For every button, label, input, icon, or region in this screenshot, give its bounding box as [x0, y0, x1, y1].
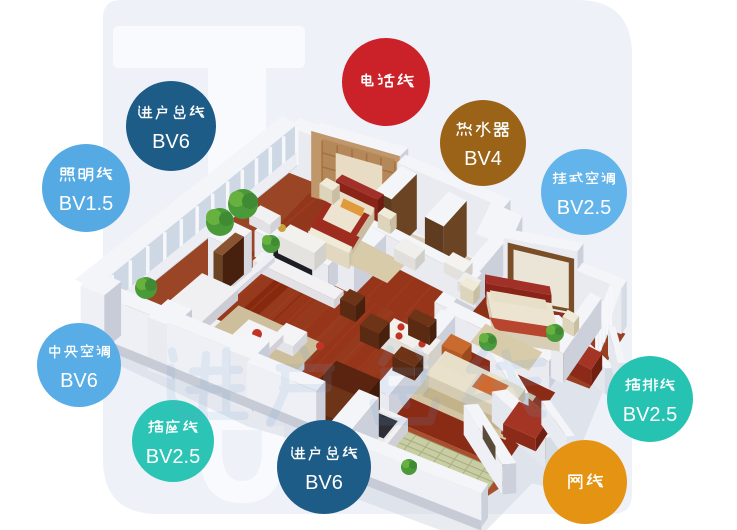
svg-text:BV1.5: BV1.5	[59, 193, 113, 215]
svg-text:BV4: BV4	[464, 148, 502, 170]
svg-text:BV2.5: BV2.5	[623, 404, 677, 426]
svg-text:BV6: BV6	[152, 131, 190, 153]
svg-text:BV6: BV6	[305, 472, 343, 494]
svg-text:BV6: BV6	[60, 370, 98, 392]
svg-text:BV2.5: BV2.5	[557, 197, 611, 219]
svg-text:BV2.5: BV2.5	[146, 446, 200, 468]
